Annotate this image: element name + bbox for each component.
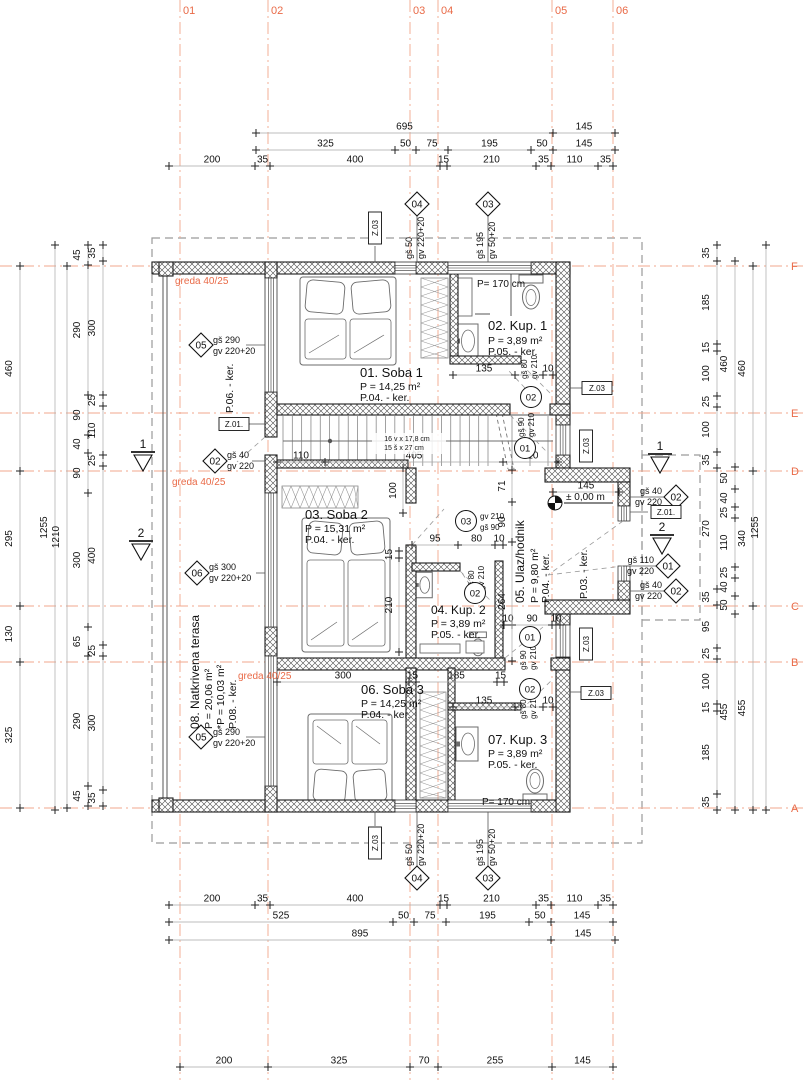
d01r-gs: gš 110	[628, 555, 654, 565]
door-marker-number-01: 01	[520, 444, 531, 455]
wall	[159, 262, 173, 276]
dim-value-bot-4: 145	[574, 1056, 591, 1067]
door-marker-number-02: 02	[526, 393, 537, 404]
wall	[551, 658, 570, 670]
room-soba2-floor: P.04. - ker.	[305, 534, 354, 546]
dim-value-right-1: 35	[701, 796, 712, 808]
lintel-tag-Z03: Z.03	[588, 689, 605, 698]
dim-value-kup1-door: 135	[476, 364, 493, 375]
dim-value-top-3: 15	[438, 155, 450, 166]
grid-row-label-A: A	[791, 803, 799, 815]
grid-row-label-E: E	[791, 408, 798, 420]
lintel-tag-Z01: Z.01.	[225, 420, 243, 429]
dim-value-left-4: 290	[72, 321, 83, 338]
dim-value-right-2: 40	[719, 492, 730, 504]
d03-top-gv: gv 50+20	[487, 222, 497, 259]
dim-value-entry145: 145	[578, 481, 595, 492]
opening-marker-number-02: 02	[670, 587, 682, 598]
dim-value-right-1: 35	[701, 454, 712, 466]
opening-marker-number-06: 06	[191, 569, 203, 580]
dim-value-left-4: 90	[72, 409, 83, 421]
dim-value-left-5: 110	[87, 422, 98, 438]
dim-value-kup2: 80	[471, 534, 483, 545]
floor-p06: P.06. - ker.	[224, 364, 236, 413]
lintel-tag-Z03: Z.03	[582, 437, 591, 454]
dim-value-left-5: 400	[87, 547, 98, 564]
d02rb-gv: gv 220	[635, 591, 662, 601]
wall	[550, 404, 570, 415]
dim-value-left-5: 35	[87, 247, 98, 259]
dim-value-left-5: 25	[87, 645, 98, 657]
dim-value-bot-1: 110	[567, 894, 583, 905]
dim-value-bot-2: 50	[534, 911, 546, 922]
d03-top-gs: gš 195	[475, 232, 485, 259]
dim-value-left-1: 130	[4, 625, 15, 642]
room-soba2-title: 03. Soba 2	[305, 507, 368, 522]
door-marker-number-03: 03	[461, 517, 472, 528]
dim-value-right-1: 185	[701, 744, 712, 761]
dim-value-left-5: 300	[87, 714, 98, 731]
dim-value-top-3: 210	[483, 155, 500, 166]
d04-bot-gs: gš 50	[404, 844, 414, 866]
c01a-gv: gv 210	[527, 412, 536, 437]
dim-value-top-1: 695	[396, 122, 413, 133]
dim-value-bot-4: 70	[418, 1056, 430, 1067]
dim-value-top-2: 50	[400, 139, 412, 150]
dim-value-left-4: 45	[72, 249, 83, 261]
bed-pillow	[353, 769, 388, 804]
c01b-gv: gv 210	[529, 645, 538, 670]
sink-faucet-icon	[456, 742, 460, 747]
door-marker-number-02: 02	[470, 589, 481, 600]
wall	[556, 657, 570, 812]
d02rb-gs: gš 40	[640, 580, 662, 590]
grid-row-label-B: B	[791, 657, 798, 669]
opening-marker-number-04: 04	[411, 200, 423, 211]
dim-value-top-2: 325	[317, 139, 334, 150]
dim-value-right-3: 460	[737, 360, 748, 377]
dim-value-kup3-door: 10	[542, 696, 554, 707]
dim-value-right-2: 460	[719, 355, 730, 372]
d03-bot-gv: gv 50+20	[487, 829, 497, 866]
dim-value-top-3: 400	[347, 155, 364, 166]
room-terasa-area2: *P = 10,03 m²	[215, 664, 227, 729]
dim-value-top-2: 195	[481, 139, 498, 150]
stair-walkline-start	[328, 439, 332, 443]
dim-value-left-4: 45	[72, 790, 83, 802]
d02l-gs: gš 40	[227, 450, 249, 460]
dim-value-right-1: 100	[701, 673, 712, 690]
dim-value-bot-3: 145	[575, 929, 592, 940]
dim-value-top-3: 110	[567, 155, 583, 166]
room-kup3-title: 07. Kup. 3	[488, 732, 547, 747]
fixture-box	[458, 278, 472, 316]
wall	[416, 262, 448, 274]
d06-gv: gv 220+20	[209, 573, 251, 583]
opening-marker-number-03: 03	[482, 874, 494, 885]
greda-3: greda 40/25	[238, 671, 292, 682]
dim-value-right-1: 35	[701, 591, 712, 603]
dim-value-kup2: 95	[429, 534, 441, 545]
opening-marker-number-01: 01	[662, 562, 674, 573]
fixture-box	[420, 644, 460, 653]
dim-value-right-1: 185	[701, 294, 712, 311]
dim-value-right-2: 50	[719, 599, 730, 611]
dim-value-top-2: 75	[426, 139, 438, 150]
dim-value-kup2: 10	[493, 534, 505, 545]
dim-value-right-4: 1255	[750, 516, 761, 539]
d04-bot-gv: gv 220+20	[416, 824, 426, 866]
dim-value-left-1: 325	[4, 726, 15, 743]
opening-marker-number-04: 04	[411, 874, 423, 885]
dim-value-right-2: 455	[719, 703, 730, 720]
dim-value-right-1: 15	[701, 702, 712, 714]
d04-top-gs: gš 50	[404, 237, 414, 259]
dim-value-right-1: 25	[701, 648, 712, 660]
dim-value-left-4: 300	[72, 551, 83, 568]
dim-value-soba3: 300	[335, 671, 352, 682]
dim-value-bot-1: 210	[483, 894, 500, 905]
lintel-tag-Z03: Z.03	[371, 834, 380, 851]
c02a-gv: gv 210	[530, 354, 539, 379]
wall	[448, 668, 455, 800]
room-soba1-floor: P.04. - ker.	[360, 392, 409, 404]
dim-value-right-2: 40	[719, 581, 730, 593]
room-soba3-title: 06. Soba 3	[361, 682, 424, 697]
stair-note-2: 15 š x 27 cm	[384, 445, 424, 452]
dim-value-right-1: 35	[701, 247, 712, 259]
dim-value-right-3: 340	[737, 530, 748, 547]
dim-value-right-3: 455	[737, 699, 748, 716]
dim-value-right-1: 100	[701, 365, 712, 382]
dim-value-hodnik: 71	[497, 480, 508, 492]
dim-value-bot-2: 525	[273, 911, 290, 922]
lintel-tag-Z03: Z.03	[582, 635, 591, 652]
dim-value-left-5: 25	[87, 455, 98, 467]
d03-bot-gs: gš 195	[475, 839, 485, 866]
d05b-gs: gš 290	[213, 727, 240, 737]
section-number-2: 2	[138, 526, 145, 540]
room-ulaz-title: 05. Ulaz/hodnik	[513, 519, 527, 603]
dim-value-left-5: 35	[87, 792, 98, 804]
dim-value-soba3: 15	[495, 671, 507, 682]
wall	[265, 800, 395, 812]
grid-row-label-F: F	[791, 261, 798, 273]
d06-gs: gš 300	[209, 562, 236, 572]
door-marker-number-02: 02	[525, 685, 536, 696]
dim-value-bot-2: 145	[574, 911, 591, 922]
parapet-top: P= 170 cm	[477, 279, 525, 290]
wall	[545, 600, 630, 614]
room-ulaz-floor: P.04. - ker.	[540, 554, 552, 603]
dim-value-top-3: 35	[538, 155, 550, 166]
room-kup2-title: 04. Kup. 2	[431, 603, 486, 617]
dim-value-bed2: 210	[384, 596, 395, 613]
bed-pillow	[351, 279, 392, 314]
greda-2: greda 40/25	[172, 477, 226, 488]
grid-col-label-06: 06	[616, 5, 628, 17]
dim-value-hod-door: 90	[526, 614, 538, 625]
section-number-1: 1	[657, 439, 664, 453]
grid-row-label-D: D	[791, 466, 799, 478]
d05a-gs: gš 290	[213, 335, 240, 345]
dim-value-right-1: 25	[701, 396, 712, 408]
dim-value-top-2: 145	[576, 139, 593, 150]
dim-value-left-5: 300	[87, 319, 98, 336]
parapet-bottom: P= 170 cm	[482, 797, 530, 808]
room-terasa-floor: P.08. - ker.	[227, 680, 239, 729]
dim-value-bot-3: 895	[352, 929, 369, 940]
dim-value-right-2: 25	[719, 567, 730, 579]
wall	[618, 581, 630, 600]
c03-gv: gv 210	[480, 512, 505, 521]
d02l-gv: gv 220	[227, 461, 254, 471]
room-kup2-floor: P.05. - ker.	[431, 629, 480, 641]
dim-value-right-1: 95	[701, 621, 712, 633]
wall	[265, 262, 277, 278]
dim-value-bot-4: 325	[331, 1056, 348, 1067]
wall	[159, 798, 173, 812]
c02a-gs: gš 80	[520, 359, 529, 379]
dim-value-top-2: 50	[536, 139, 548, 150]
wall	[416, 800, 448, 812]
d05a-gv: gv 220+20	[213, 346, 255, 356]
d04-top-gv: gv 220+20	[416, 217, 426, 259]
room-kup3-floor: P.05. - ker.	[488, 759, 537, 771]
dim-value-soba2-100: 100	[388, 482, 399, 499]
c02c-gs: gš 80	[519, 699, 528, 719]
dim-value-right-2: 25	[719, 507, 730, 519]
dim-value-bot-1: 15	[438, 894, 450, 905]
greda-1: greda 40/25	[175, 276, 229, 287]
dim-value-hod-door: 10	[550, 614, 562, 625]
dim-value-left-3: 1210	[51, 525, 62, 548]
grid-row-label-C: C	[791, 601, 799, 613]
lintel-tag-Z03: Z.03	[371, 219, 380, 236]
c01a-gs: gš 90	[517, 417, 526, 437]
opening-marker-number-05: 05	[195, 733, 207, 744]
opening-marker-number-03: 03	[482, 200, 494, 211]
room-kup1-title: 02. Kup. 1	[488, 318, 547, 333]
dim-value-left-1: 295	[4, 530, 15, 547]
door-marker-number-01: 01	[525, 633, 536, 644]
dim-value-bot-1: 35	[600, 894, 612, 905]
floor-plan-page: 010203040506FEDCBA6951453255075195501452…	[0, 0, 803, 1080]
dim-value-bot-1: 400	[347, 894, 364, 905]
dim-value-hodnik: 264	[497, 593, 508, 610]
dim-value-top-1: 145	[576, 122, 593, 133]
floor-p03: P.03. - ker.	[578, 550, 590, 599]
dim-value-left-4: 40	[72, 438, 83, 450]
grid-col-label-03: 03	[413, 5, 425, 17]
dim-value-bot-4: 200	[216, 1056, 233, 1067]
wall	[277, 404, 510, 415]
wall	[265, 455, 277, 493]
dim-value-bot-4: 255	[487, 1056, 504, 1067]
dim-value-right-1: 100	[701, 421, 712, 438]
grid-col-label-05: 05	[555, 5, 567, 17]
dim-value-top-3: 35	[600, 155, 612, 166]
dim-value-bed2: 15	[384, 549, 395, 561]
opening-marker-number-02: 02	[209, 457, 221, 468]
room-soba1-title: 01. Soba 1	[360, 365, 423, 380]
wall	[265, 786, 277, 812]
grid-col-label-02: 02	[271, 5, 283, 17]
opening-marker-number-05: 05	[195, 341, 207, 352]
wall	[618, 482, 630, 506]
dim-value-left-4: 90	[72, 467, 83, 479]
dim-value-left-4: 290	[72, 712, 83, 729]
dim-value-soba3: 185	[448, 671, 465, 682]
wall	[277, 658, 505, 670]
wall	[450, 274, 458, 358]
wall	[412, 563, 460, 571]
level-label: ± 0,00 m	[566, 492, 605, 503]
wall	[406, 545, 416, 658]
dim-value-right-2: 50	[719, 472, 730, 484]
opening-marker-number-02: 02	[670, 493, 682, 504]
dim-value-left-1: 460	[4, 360, 15, 377]
section-number-2: 2	[659, 520, 666, 534]
room-terasa-title: 08. Natkrivena terasa	[188, 615, 202, 729]
dim-value-bot-2: 50	[398, 911, 410, 922]
wall	[265, 392, 277, 437]
dim-value-top-3: 200	[204, 155, 221, 166]
dim-value-soba3: 15	[407, 671, 419, 682]
dim-value-bot-2: 195	[479, 911, 496, 922]
d05b-gv: gv 220+20	[213, 738, 255, 748]
dim-value-top-3: 35	[257, 155, 269, 166]
grid-col-label-01: 01	[183, 5, 195, 17]
floor-plan-canvas: 010203040506FEDCBA6951453255075195501452…	[0, 0, 803, 1080]
dim-value-left-2: 1255	[39, 516, 50, 539]
dim-value-kup1-door: 10	[542, 364, 554, 375]
section-number-1: 1	[140, 437, 147, 451]
dim-value-bot-1: 200	[204, 894, 221, 905]
dim-value-bot-1: 35	[538, 894, 550, 905]
c03-gs: gš 90	[480, 523, 500, 532]
dim-value-right-1: 15	[701, 342, 712, 354]
lintel-tag-Z01: Z.01.	[657, 508, 675, 517]
bed-pillow	[305, 279, 346, 314]
dim-value-bot-2: 75	[424, 911, 436, 922]
grid-col-label-04: 04	[441, 5, 453, 17]
dim-value-bot-1: 35	[257, 894, 269, 905]
dim-value-kup3-door: 135	[476, 696, 493, 707]
bed-pillow	[313, 769, 348, 804]
dim-value-left-4: 65	[72, 636, 83, 648]
c01b-gs: gš 90	[519, 650, 528, 670]
room-soba3-floor: P.04. - ker.	[361, 709, 410, 721]
fixture-box	[466, 641, 484, 653]
wall	[556, 262, 570, 425]
dim-value-left-5: 25	[87, 395, 98, 407]
dim-value-right-2: 110	[719, 534, 730, 550]
d01r-gv: gv 220	[627, 566, 654, 576]
wall	[265, 627, 277, 656]
d02ra-gs: gš 40	[640, 486, 662, 496]
dim-value-stairs: 110	[293, 451, 309, 462]
wall	[265, 262, 395, 274]
lintel-tag-Z03: Z.03	[589, 384, 606, 393]
wall	[406, 468, 416, 503]
dim-value-right-1: 270	[701, 520, 712, 537]
room-terasa-area1: P = 20,06 m²	[203, 668, 215, 729]
stair-note-1: 16 v x 17,8 cm	[384, 436, 430, 443]
